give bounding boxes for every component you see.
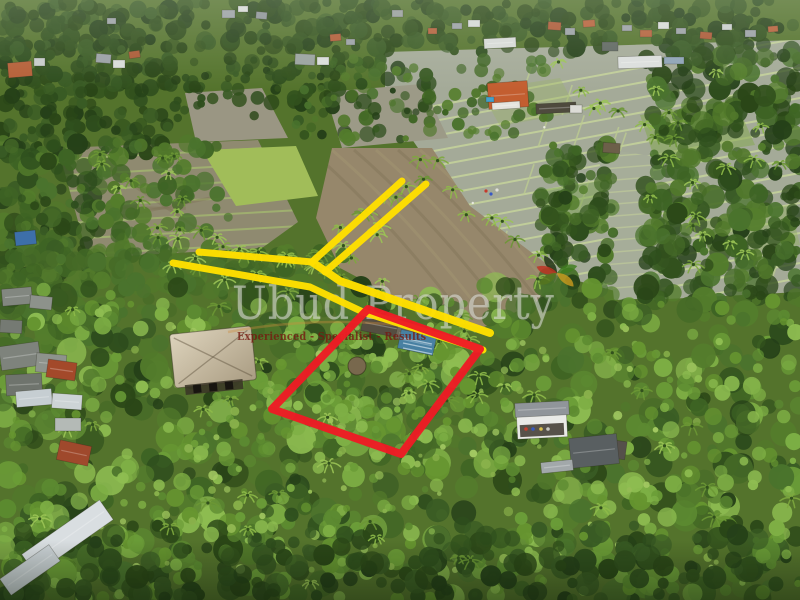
listing-annotations-overlay <box>0 0 800 600</box>
road-marking-line <box>325 184 426 272</box>
plot-boundary-line <box>272 309 480 454</box>
road-marking-line <box>199 252 312 262</box>
road-marking-line <box>312 181 402 262</box>
aerial-photo: Ubud Property Experienced - Specialist -… <box>0 0 800 600</box>
